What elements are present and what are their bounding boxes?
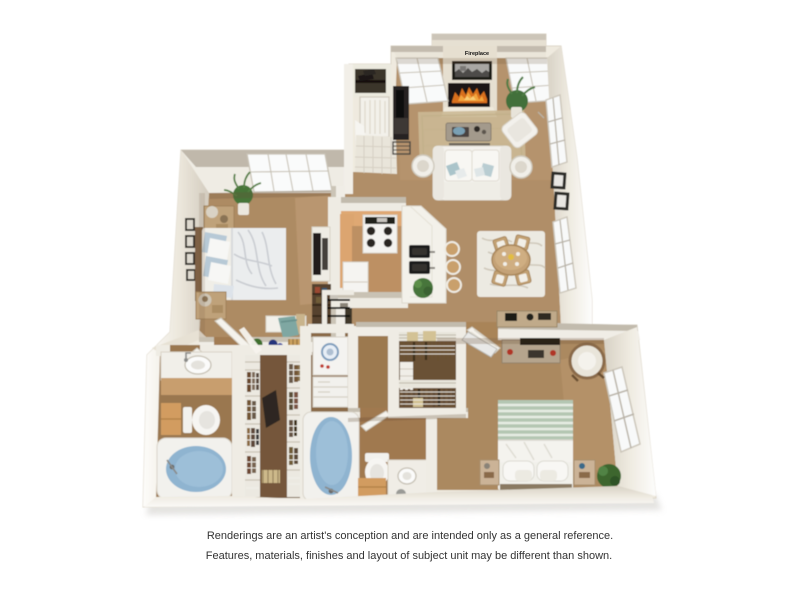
svg-text:Renderings are an artist's con: Renderings are an artist's conception an… (207, 530, 613, 542)
svg-text:Fireplace: Fireplace (465, 51, 489, 57)
svg-text:Features, materials, finishes: Features, materials, finishes and layout… (206, 550, 612, 562)
